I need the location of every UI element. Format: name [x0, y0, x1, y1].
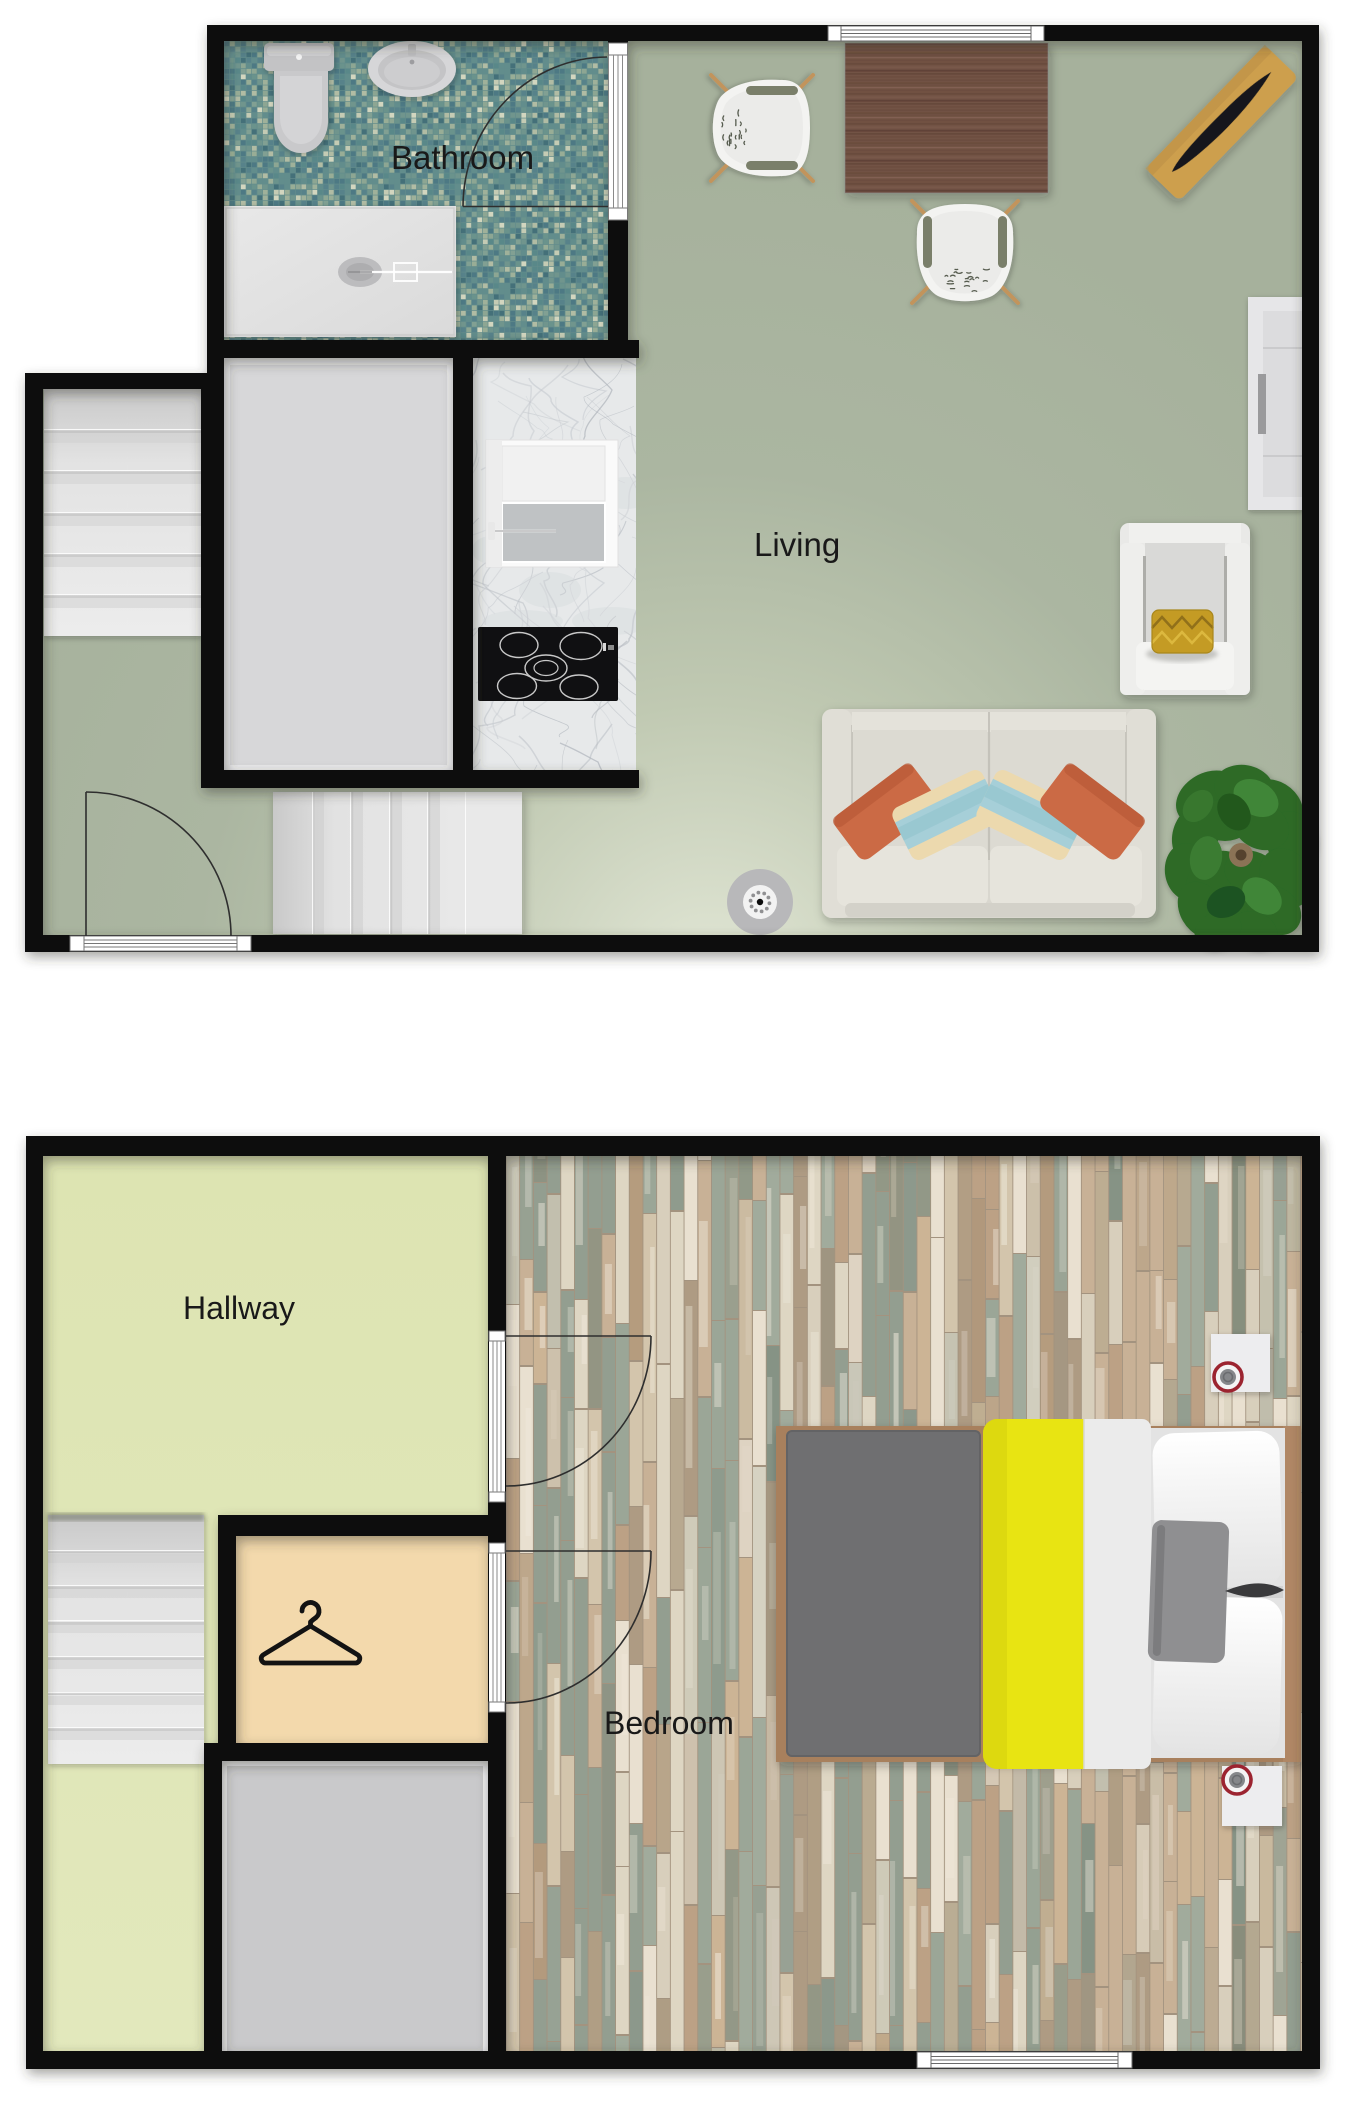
svg-text:Bathroom: Bathroom [391, 139, 534, 176]
svg-text:Hallway: Hallway [183, 1290, 295, 1326]
svg-text:Bedroom: Bedroom [604, 1705, 734, 1741]
svg-text:Living: Living [754, 526, 840, 563]
